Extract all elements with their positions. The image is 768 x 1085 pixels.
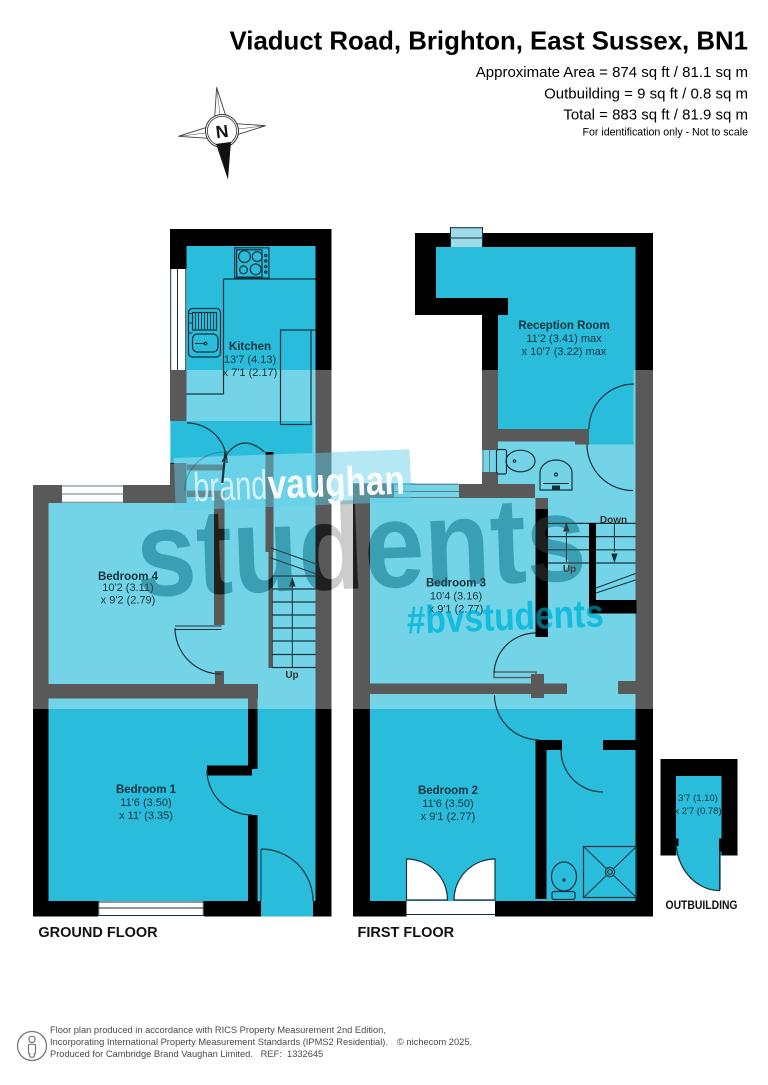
svg-text:OUTBUILDING: OUTBUILDING xyxy=(666,898,738,912)
svg-text:Total = 883 sq ft / 81.9 sq m: Total = 883 sq ft / 81.9 sq m xyxy=(563,107,748,124)
svg-text:Approximate Area = 874 sq ft /: Approximate Area = 874 sq ft / 81.1 sq m xyxy=(476,64,748,81)
svg-text:x 2'7 (0.78): x 2'7 (0.78) xyxy=(674,806,721,817)
svg-text:GROUND FLOOR: GROUND FLOOR xyxy=(38,925,158,941)
svg-text:Down: Down xyxy=(600,515,627,526)
svg-text:Up: Up xyxy=(285,670,298,681)
svg-text:x 10'7 (3.22) max: x 10'7 (3.22) max xyxy=(522,346,607,358)
svg-text:#bvstudents: #bvstudents xyxy=(406,592,604,642)
svg-text:Viaduct Road, Brighton, East S: Viaduct Road, Brighton, East Sussex, BN1 xyxy=(230,28,748,56)
svg-text:For identification only - Not: For identification only - Not to scale xyxy=(583,127,749,139)
svg-text:© nichecom 2025.: © nichecom 2025. xyxy=(397,1037,472,1047)
svg-text:Floor plan produced in accorda: Floor plan produced in accordance with R… xyxy=(50,1025,386,1035)
svg-text:13'7 (4.13): 13'7 (4.13) xyxy=(224,354,276,366)
svg-text:Reception Room: Reception Room xyxy=(518,320,609,332)
svg-text:11'6 (3.50): 11'6 (3.50) xyxy=(422,798,473,810)
svg-text:11'2 (3.41) max: 11'2 (3.41) max xyxy=(526,333,602,345)
svg-text:Produced for Cambridge Brand V: Produced for Cambridge Brand Vaughan Lim… xyxy=(50,1049,323,1059)
svg-text:N: N xyxy=(215,121,230,142)
svg-text:Bedroom 2: Bedroom 2 xyxy=(418,785,478,797)
svg-text:x 7'1 (2.17): x 7'1 (2.17) xyxy=(223,367,278,379)
svg-text:FIRST FLOOR: FIRST FLOOR xyxy=(358,925,455,941)
svg-text:x 11' (3.35): x 11' (3.35) xyxy=(119,810,173,822)
svg-text:Kitchen: Kitchen xyxy=(229,341,271,353)
svg-text:Bedroom 1: Bedroom 1 xyxy=(116,784,177,796)
svg-text:Outbuilding = 9 sq ft / 0.8 sq: Outbuilding = 9 sq ft / 0.8 sq m xyxy=(544,86,748,103)
svg-text:3'7 (1.10): 3'7 (1.10) xyxy=(678,793,718,804)
svg-text:11'6 (3.50): 11'6 (3.50) xyxy=(120,797,171,809)
svg-text:Incorporating International Pr: Incorporating International Property Mea… xyxy=(50,1037,388,1047)
svg-text:x 9'1 (2.77): x 9'1 (2.77) xyxy=(421,811,476,823)
